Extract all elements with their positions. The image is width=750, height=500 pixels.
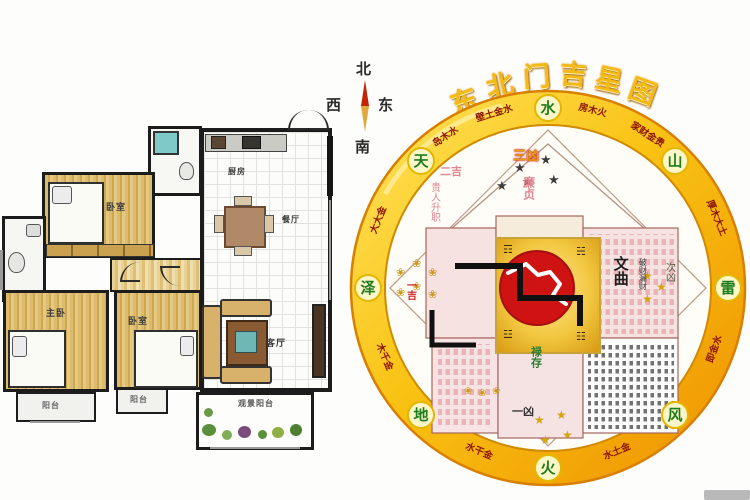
star-icon: ★ <box>522 175 534 190</box>
flower-icon: ❀ <box>412 280 421 293</box>
flower-icon: ❀ <box>478 388 486 399</box>
sink-icon <box>242 136 261 149</box>
flower-icon: ❀ <box>492 386 500 397</box>
chair <box>214 215 224 233</box>
pillow <box>52 186 72 204</box>
flower-icon: ❀ <box>464 386 472 397</box>
plant-icon <box>258 430 267 439</box>
room-label: 客厅 <box>266 336 286 349</box>
shower-icon <box>153 131 179 155</box>
room-label: 阳台 <box>130 394 148 405</box>
wardrobe <box>46 244 154 257</box>
direction-badge-label: 风 <box>667 406 682 424</box>
direction-badge-label: 雷 <box>720 279 735 297</box>
chair <box>234 196 252 206</box>
direction-badge-label: 地 <box>413 406 428 424</box>
star-icon: ★ <box>534 413 545 427</box>
sofa <box>220 366 272 384</box>
center-seal <box>500 251 574 325</box>
stove-icon <box>211 136 226 149</box>
bed <box>48 182 104 244</box>
room-label: 阳台 <box>42 400 60 411</box>
trigram-icon: ☷ <box>576 330 586 343</box>
flower-icon: ❀ <box>412 257 421 270</box>
room-label: 主卧 <box>46 306 66 319</box>
pillow <box>12 336 27 357</box>
sink-icon <box>26 224 41 237</box>
star-icon: ★ <box>540 433 551 447</box>
star-icon: ★ <box>562 428 573 442</box>
room-label: 卧室 <box>128 314 148 327</box>
bagua-chart: ☶ ☵ ☳ ☷ ★ ★ ★ ★ ★ ★ ★ ★ ★ ★ ★ ★ ❀ ❀ ❀ <box>348 88 748 488</box>
sofa <box>220 299 272 317</box>
flower-icon: ❀ <box>396 266 405 279</box>
window-mark <box>30 421 80 423</box>
trigram-icon: ☳ <box>503 328 513 341</box>
toilet-icon <box>8 252 25 273</box>
direction-badge-label: 山 <box>667 152 682 170</box>
room-label: 厨房 <box>228 166 246 177</box>
flower-icon: ❀ <box>428 266 437 279</box>
toilet-icon <box>179 162 194 180</box>
window-mark <box>210 447 300 449</box>
trigram-icon: ☶ <box>503 243 513 256</box>
entry-door-arc <box>288 110 308 130</box>
bed <box>8 330 66 388</box>
star-icon: ★ <box>556 408 567 422</box>
chart-room <box>426 228 496 338</box>
plant-icon <box>202 424 216 436</box>
star-icon: ★ <box>642 269 653 283</box>
chair <box>234 246 252 256</box>
room-label: 观景阳台 <box>238 398 274 409</box>
direction-badge-label: 水 <box>540 99 556 117</box>
flower-icon: ❀ <box>396 286 405 299</box>
star-icon: ★ <box>514 161 526 176</box>
bed <box>134 330 198 388</box>
chair <box>264 215 274 233</box>
direction-badge-label: 天 <box>413 152 429 170</box>
star-icon: ★ <box>496 179 508 194</box>
star-icon: ★ <box>540 153 552 168</box>
plant-icon <box>204 408 213 417</box>
tv-cabinet <box>312 304 326 378</box>
flower-icon: ❀ <box>428 288 437 301</box>
coffee-table <box>226 320 268 366</box>
room-label: 卧室 <box>106 200 126 213</box>
window-mark <box>329 200 331 300</box>
table-inlay <box>235 331 257 353</box>
screenshot-root: 卧室 主卧 卧室 厨房 餐厅 <box>0 0 750 500</box>
star-icon: ★ <box>642 292 653 306</box>
plant-icon <box>272 427 284 438</box>
pillow <box>180 336 194 356</box>
star-icon: ★ <box>656 280 667 294</box>
star-icon: ★ <box>548 173 560 188</box>
title-char: 吉 <box>559 52 589 93</box>
plant-icon <box>222 430 232 440</box>
sofa <box>202 305 222 379</box>
direction-badge-label: 火 <box>540 459 556 477</box>
plant-icon <box>290 424 302 436</box>
watermark <box>704 490 750 500</box>
window-mark <box>0 250 3 290</box>
direction-badge-label: 泽 <box>360 279 375 297</box>
trigram-icon: ☵ <box>576 245 586 258</box>
dining-table <box>224 206 266 248</box>
plant-icon <box>238 426 251 438</box>
room-label: 餐厅 <box>282 214 300 225</box>
